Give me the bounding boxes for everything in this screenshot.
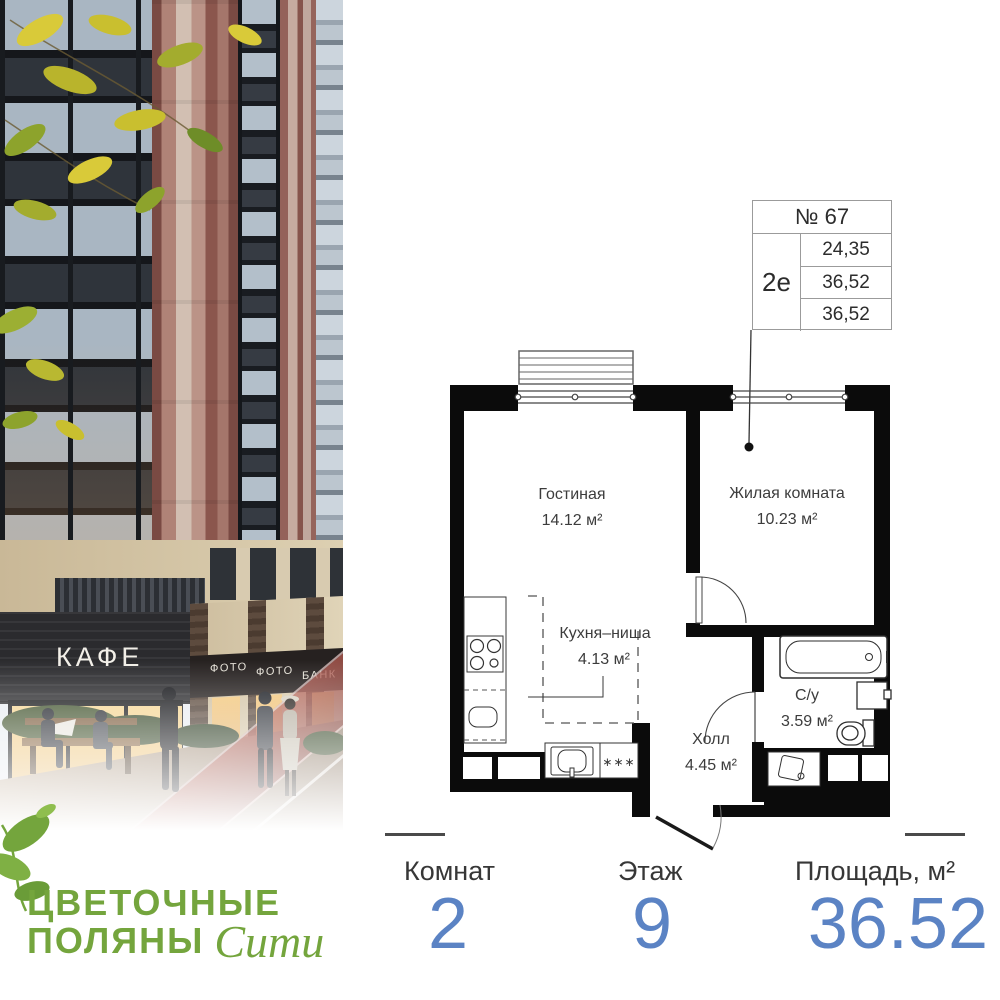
- separator-dash: [905, 833, 965, 836]
- room-kitchen-name: Кухня–ниша: [559, 625, 650, 642]
- stat-area-label: Площадь, м²: [795, 856, 955, 887]
- stat-floor-label: Этаж: [618, 856, 683, 887]
- room-bathroom-name: С/у: [795, 687, 819, 704]
- wash-basin: [857, 682, 891, 709]
- room-living-area: 14.12 м²: [542, 512, 603, 529]
- logo-script: Сити: [214, 916, 324, 967]
- leader-dot: [745, 443, 754, 452]
- balcony: [519, 351, 633, 384]
- unit-area-row: 24,35: [801, 234, 891, 266]
- autumn-leaves: [0, 0, 280, 460]
- unit-area-row: 36,52: [801, 266, 891, 299]
- window-living: [515, 391, 636, 403]
- unit-number: № 67: [753, 201, 891, 234]
- room-bedroom-name: Жилая комната: [729, 485, 845, 502]
- room-bathroom-area: 3.59 м²: [781, 713, 834, 730]
- entry-door: [656, 805, 721, 849]
- walls: [450, 385, 890, 817]
- stat-floor-value: 9: [592, 888, 712, 960]
- room-kitchen-area: 4.13 м²: [578, 651, 631, 668]
- bathtub: [780, 636, 887, 678]
- balcony-slats: [55, 578, 205, 614]
- brand-logo: ЦВЕТОЧНЫЕ ПОЛЯНЫСити: [27, 884, 324, 961]
- cafe-sign: КАФЕ: [56, 642, 143, 673]
- room-bedroom-area: 10.23 м²: [757, 511, 818, 528]
- washing-machine: [768, 752, 820, 786]
- window-bedroom: [730, 391, 848, 403]
- stat-rooms-label: Комнат: [404, 856, 495, 887]
- room-hall-name: Холл: [692, 731, 730, 748]
- stat-rooms-value: 2: [388, 888, 508, 960]
- area-bracket: [528, 676, 603, 697]
- room-hall-area: 4.45 м²: [685, 757, 738, 774]
- bedroom-door: [696, 577, 746, 623]
- unit-area-row: 36,52: [801, 298, 891, 331]
- kitchen-sink: [469, 707, 497, 727]
- separator-dash: [385, 833, 445, 836]
- street-window-row: [210, 548, 343, 600]
- unit-info-card: № 67 2е 24,35 36,52 36,52: [752, 200, 892, 330]
- stat-area-value: 36.52: [788, 888, 988, 960]
- unit-plan-type: 2е: [753, 234, 801, 331]
- floor-plan: ∗∗∗ Гостиная 14.12 м² Жилая комната 1: [440, 330, 910, 860]
- toilet: [837, 720, 874, 746]
- room-living-name: Гостиная: [538, 486, 605, 503]
- building-photo: КАФЕ ФОТО ФОТО БАНК: [0, 0, 343, 868]
- washer-marker: ∗∗∗: [602, 755, 635, 769]
- logo-line2: ПОЛЯНЫСити: [27, 922, 324, 961]
